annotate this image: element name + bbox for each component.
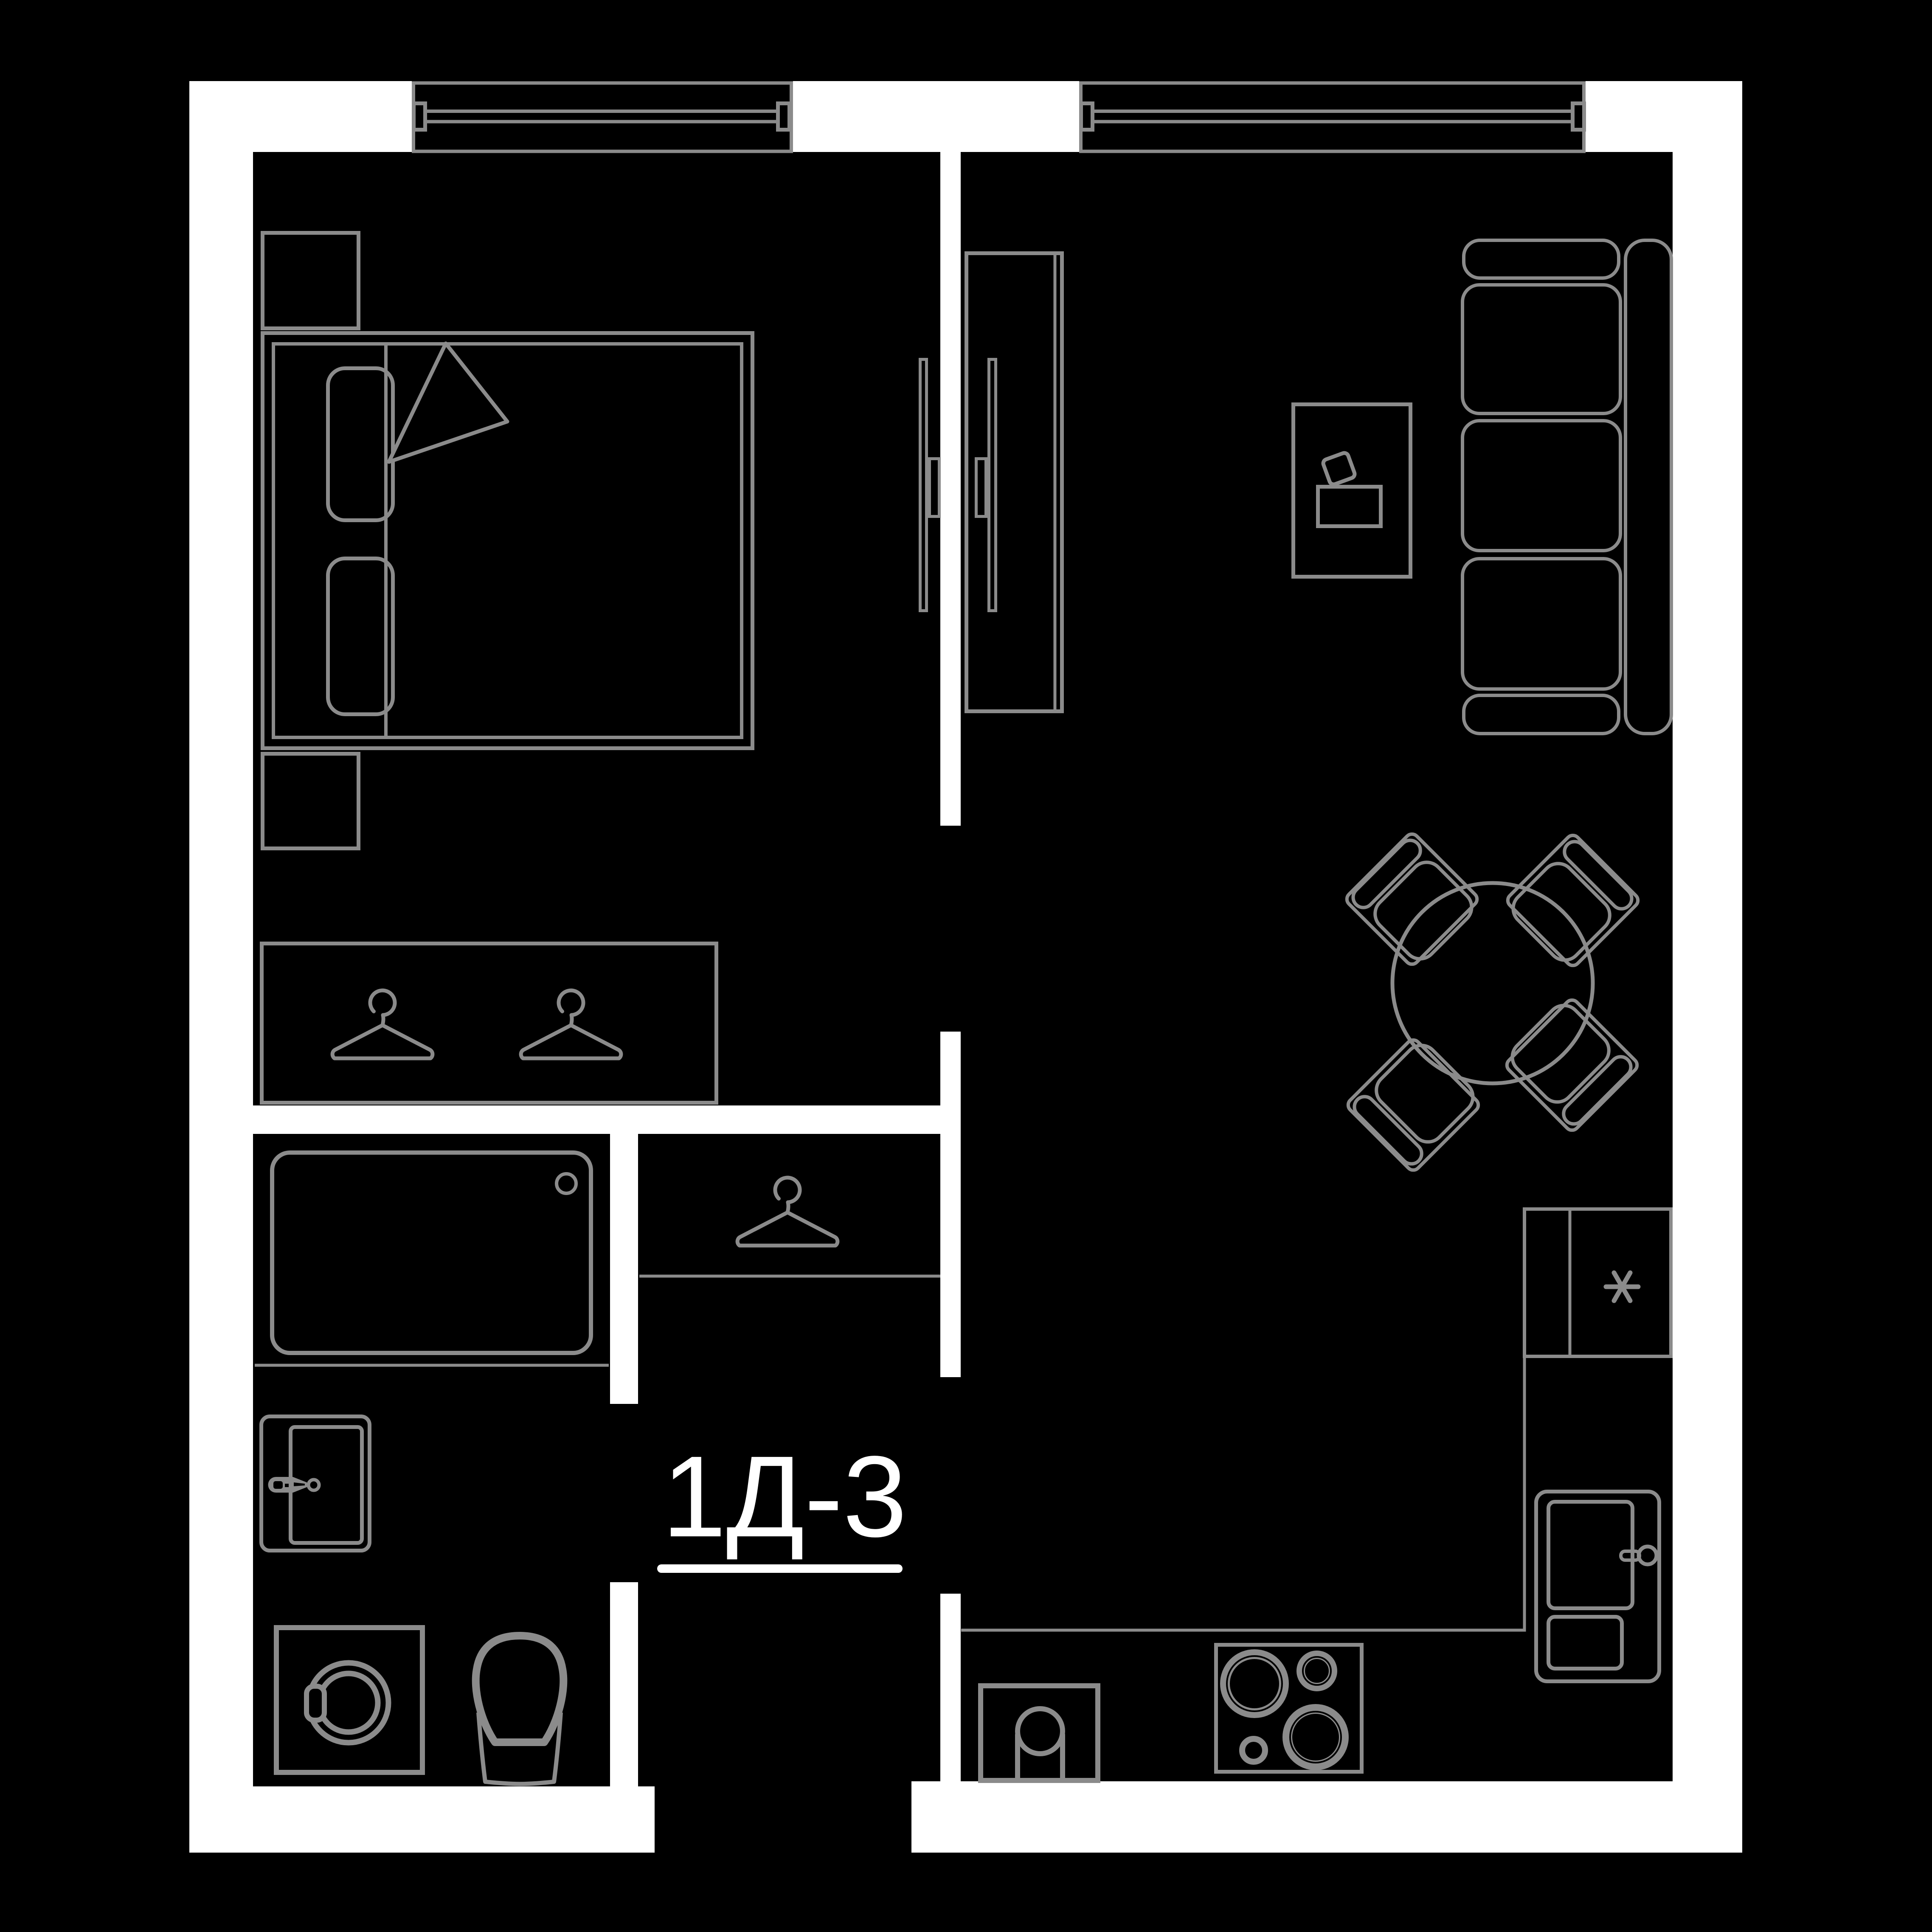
svg-text:1Д-3: 1Д-3 [662,1432,907,1561]
